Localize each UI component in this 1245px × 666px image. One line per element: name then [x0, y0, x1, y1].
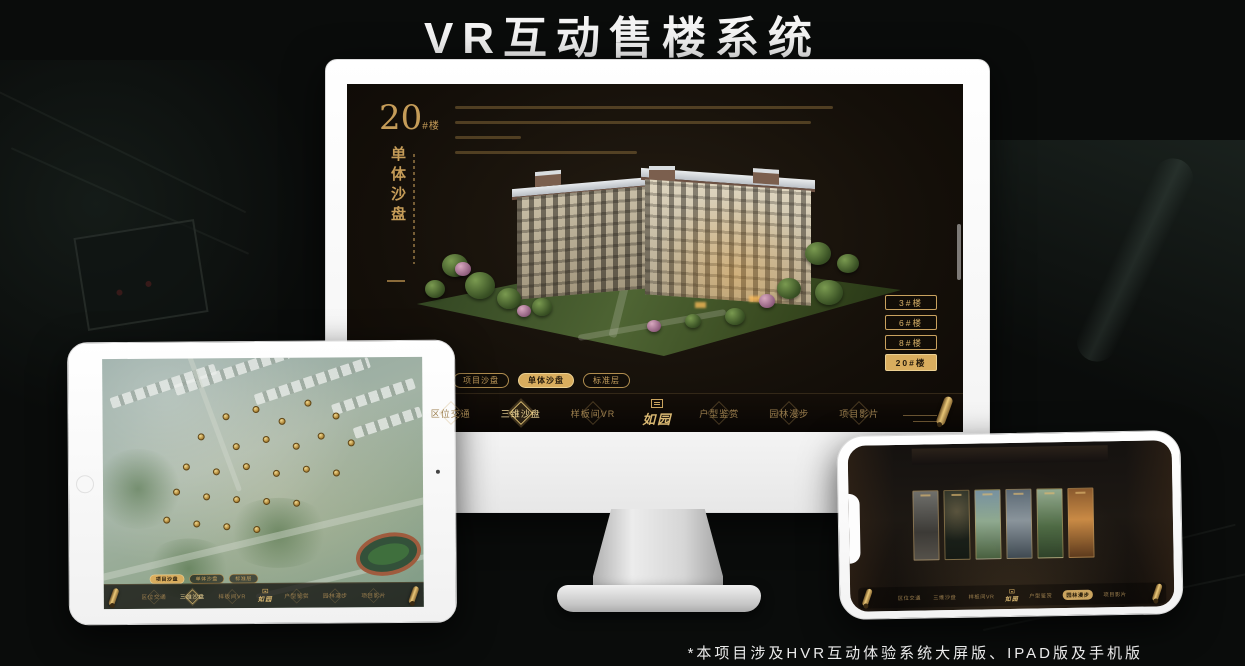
brand-name: 如园: [1005, 593, 1019, 602]
building-marker[interactable]: [263, 498, 270, 505]
panel-label-mark: [951, 494, 961, 496]
nav-item-floorplans[interactable]: 户型鉴赏: [696, 405, 742, 422]
roof-dormer: [535, 170, 561, 187]
description-line: [455, 106, 833, 109]
panorama-panel[interactable]: [974, 489, 1001, 559]
building-row: [331, 378, 416, 416]
building-marker[interactable]: [303, 466, 310, 473]
description-line: [455, 136, 521, 139]
subtab-single-sandtable[interactable]: 单体沙盘: [518, 373, 574, 388]
description-line: [455, 121, 811, 124]
tree-shape-pink: [455, 262, 471, 276]
building-number: 20: [379, 98, 422, 138]
vertical-deco-line: [413, 154, 415, 264]
seal-icon: [262, 589, 268, 593]
building-number-suffix: #楼: [422, 121, 440, 132]
brand-logo[interactable]: 如园: [642, 399, 672, 428]
panel-label-mark: [1044, 492, 1054, 494]
building-marker[interactable]: [203, 493, 210, 500]
subtab-standard-floor[interactable]: 标准层: [229, 574, 258, 584]
tree-shape: [725, 308, 745, 325]
gate-beam: [912, 445, 1108, 464]
brand-logo[interactable]: 如园: [1005, 589, 1019, 603]
panel-label-mark: [982, 493, 992, 495]
nav-item-project-film[interactable]: 项目影片: [836, 405, 882, 422]
tree-shape-pink: [759, 294, 775, 308]
nav-item-garden-walk[interactable]: 园林漫步: [766, 405, 812, 422]
monitor-stand-neck: [593, 509, 723, 593]
building-marker[interactable]: [163, 517, 170, 524]
nav-item-label: 项目影片: [361, 592, 386, 598]
panel-label-mark: [920, 494, 930, 496]
nav-item-showroom-vr[interactable]: 样板间VR: [967, 591, 996, 601]
tree-shape: [497, 288, 521, 309]
nav-item-label: 三维沙盘: [501, 409, 541, 419]
building-marker[interactable]: [318, 433, 325, 440]
seal-icon: [651, 399, 663, 408]
tablet-navbar: 区位交通 三维沙盘 样板间VR 如园 户型鉴赏 园林漫步 项目影片: [104, 582, 424, 609]
nav-item-label: 园林漫步: [323, 593, 348, 599]
nav-item-showroom-vr[interactable]: 样板间VR: [568, 405, 619, 422]
nav-item-3d-sandtable[interactable]: 三维沙盘: [931, 591, 958, 601]
building-marker[interactable]: [273, 470, 280, 477]
nav-item-project-film[interactable]: 项目影片: [359, 590, 388, 601]
tree-shape-pink: [647, 320, 661, 332]
building-marker[interactable]: [233, 443, 240, 450]
scroll-deco-line: [903, 415, 937, 416]
building-marker[interactable]: [252, 406, 259, 413]
page-title: VR互动售楼系统: [0, 2, 1245, 66]
nav-item-label: 户型鉴赏: [284, 593, 309, 599]
building-marker[interactable]: [213, 468, 220, 475]
tablet-home-button[interactable]: [76, 475, 94, 493]
tree-shape: [465, 272, 495, 299]
plaque-seal-dot: [145, 281, 152, 288]
background-river: [1070, 152, 1199, 368]
panel-label-mark: [1013, 493, 1023, 495]
panorama-panel[interactable]: [1005, 489, 1032, 559]
seal-icon: [1009, 589, 1014, 593]
nav-item-3d-sandtable[interactable]: 三维沙盘: [498, 405, 544, 422]
building-number-heading: 20#楼: [379, 98, 440, 138]
building-marker[interactable]: [198, 433, 205, 440]
tablet-device: 项目沙盘 单体沙盘 标准层 区位交通 三维沙盘 样板间VR 如园 户型鉴赏 园林…: [67, 340, 457, 626]
nav-item-label: 户型鉴赏: [699, 409, 739, 419]
phone-navbar: 区位交通 三维沙盘 样板间VR 如园 户型鉴赏 园林漫步 项目影片: [858, 582, 1166, 608]
nav-item-label: 样板间VR: [571, 409, 616, 419]
background-road-line: [0, 89, 246, 214]
nav-item-label: 户型鉴赏: [1029, 592, 1052, 598]
tree-shape-pink: [517, 305, 531, 317]
tree-shape: [805, 242, 831, 265]
entrance-light: [695, 302, 706, 308]
brand-name: 如园: [258, 594, 273, 603]
nav-item-label: 园林漫步: [769, 409, 809, 419]
floor-button-8[interactable]: 8#楼: [885, 335, 937, 350]
nav-item-label: 样板间VR: [969, 593, 995, 599]
tree-shape: [815, 280, 843, 305]
tablet-screen: 项目沙盘 单体沙盘 标准层 区位交通 三维沙盘 样板间VR 如园 户型鉴赏 园林…: [102, 357, 424, 609]
building-marker[interactable]: [333, 412, 340, 419]
tree-shape: [532, 298, 552, 316]
subtab-single-sandtable[interactable]: 单体沙盘: [189, 574, 224, 584]
panel-label-mark: [1075, 492, 1085, 494]
heading-underline: [387, 280, 405, 282]
building-marker[interactable]: [279, 418, 286, 425]
stage: VR互动售楼系统 20#楼 单体沙盘: [0, 0, 1245, 666]
building-marker[interactable]: [263, 436, 270, 443]
subtab-project-sandtable[interactable]: 项目沙盘: [150, 574, 185, 584]
nav-item-location[interactable]: 区位交通: [428, 405, 474, 422]
brand-name: 如园: [642, 409, 672, 428]
building-marker[interactable]: [223, 523, 230, 530]
building-marker[interactable]: [293, 500, 300, 507]
building-marker[interactable]: [253, 526, 260, 533]
phone-screen: 区位交通 三维沙盘 样板间VR 如园 户型鉴赏 园林漫步 项目影片: [848, 440, 1175, 612]
tree-shape: [777, 278, 801, 299]
nav-item-floorplans[interactable]: 户型鉴赏: [1027, 590, 1054, 600]
building-marker[interactable]: [183, 464, 190, 471]
building-marker[interactable]: [348, 439, 355, 446]
nav-item-label: 三维沙盘: [933, 594, 956, 600]
phone-notch: [848, 494, 860, 564]
nav-item-floorplans[interactable]: 户型鉴赏: [283, 590, 312, 601]
nav-item-location[interactable]: 区位交通: [896, 592, 923, 602]
tree-shape: [425, 280, 445, 298]
panorama-panel[interactable]: [1036, 488, 1063, 558]
panorama-panel[interactable]: [943, 490, 970, 560]
nav-item-3d-sandtable[interactable]: 三维沙盘: [178, 591, 207, 602]
subtab-project-sandtable[interactable]: 项目沙盘: [453, 373, 509, 388]
building-marker[interactable]: [304, 400, 311, 407]
floor-button-20[interactable]: 20#楼: [885, 354, 937, 371]
subtab-standard-floor[interactable]: 标准层: [583, 373, 630, 388]
nav-item-project-film[interactable]: 项目影片: [1102, 589, 1129, 599]
tree-shape: [685, 314, 701, 328]
nav-item-garden-walk[interactable]: 园林漫步: [1063, 589, 1093, 599]
building-marker[interactable]: [193, 520, 200, 527]
screen-scrollbar[interactable]: [957, 224, 961, 280]
brand-logo[interactable]: 如园: [258, 589, 273, 603]
nav-item-label: 区位交通: [898, 594, 921, 600]
building-marker[interactable]: [233, 496, 240, 503]
nav-item-showroom-vr[interactable]: 样板间VR: [216, 591, 247, 602]
tree-shape: [837, 254, 859, 273]
nav-item-garden-walk[interactable]: 园林漫步: [321, 590, 350, 601]
scroll-deco-line: [913, 421, 939, 422]
building-marker[interactable]: [223, 413, 230, 420]
building-marker[interactable]: [173, 489, 180, 496]
background-road-line: [11, 147, 249, 255]
building-marker[interactable]: [293, 443, 300, 450]
background-plaque: [73, 219, 208, 331]
panorama-panel[interactable]: [912, 490, 939, 560]
scroll-handle-icon[interactable]: [1151, 583, 1163, 602]
plaque-seal-dot: [116, 289, 123, 296]
nav-item-label: 项目影片: [839, 409, 879, 419]
green-patch: [102, 449, 183, 530]
monitor-subtabs: 项目沙盘 单体沙盘 标准层: [453, 373, 630, 388]
roof-dormer: [753, 168, 779, 185]
nav-item-label: 园林漫步: [1066, 592, 1089, 598]
floor-button-3[interactable]: 3#楼: [885, 295, 937, 310]
building-marker[interactable]: [243, 463, 250, 470]
nav-item-label: 项目影片: [1103, 591, 1126, 597]
background-aerial-photo: [975, 140, 1245, 470]
tablet-camera: [436, 470, 440, 474]
nav-item-label: 样板间VR: [218, 593, 246, 599]
building-facade-left: [517, 186, 647, 299]
panorama-panel[interactable]: [1067, 488, 1094, 558]
description-line: [455, 151, 637, 154]
monitor-stand-base: [557, 585, 761, 612]
building-marker[interactable]: [333, 469, 340, 476]
nav-item-label: 区位交通: [431, 409, 471, 419]
section-title-vertical: 单体沙盘: [387, 146, 408, 226]
nav-item-label: 三维沙盘: [180, 594, 205, 600]
nav-item-label: 区位交通: [141, 594, 166, 600]
nav-item-location[interactable]: 区位交通: [140, 591, 169, 602]
building-row: [353, 406, 423, 439]
floor-button-6[interactable]: 6#楼: [885, 315, 937, 330]
building-model[interactable]: [517, 180, 813, 312]
footnote: *本项目涉及HVR互动体验系统大屏版、IPAD版及手机版: [688, 642, 1143, 663]
phone-device: 区位交通 三维沙盘 样板间VR 如园 户型鉴赏 园林漫步 项目影片: [836, 430, 1183, 620]
